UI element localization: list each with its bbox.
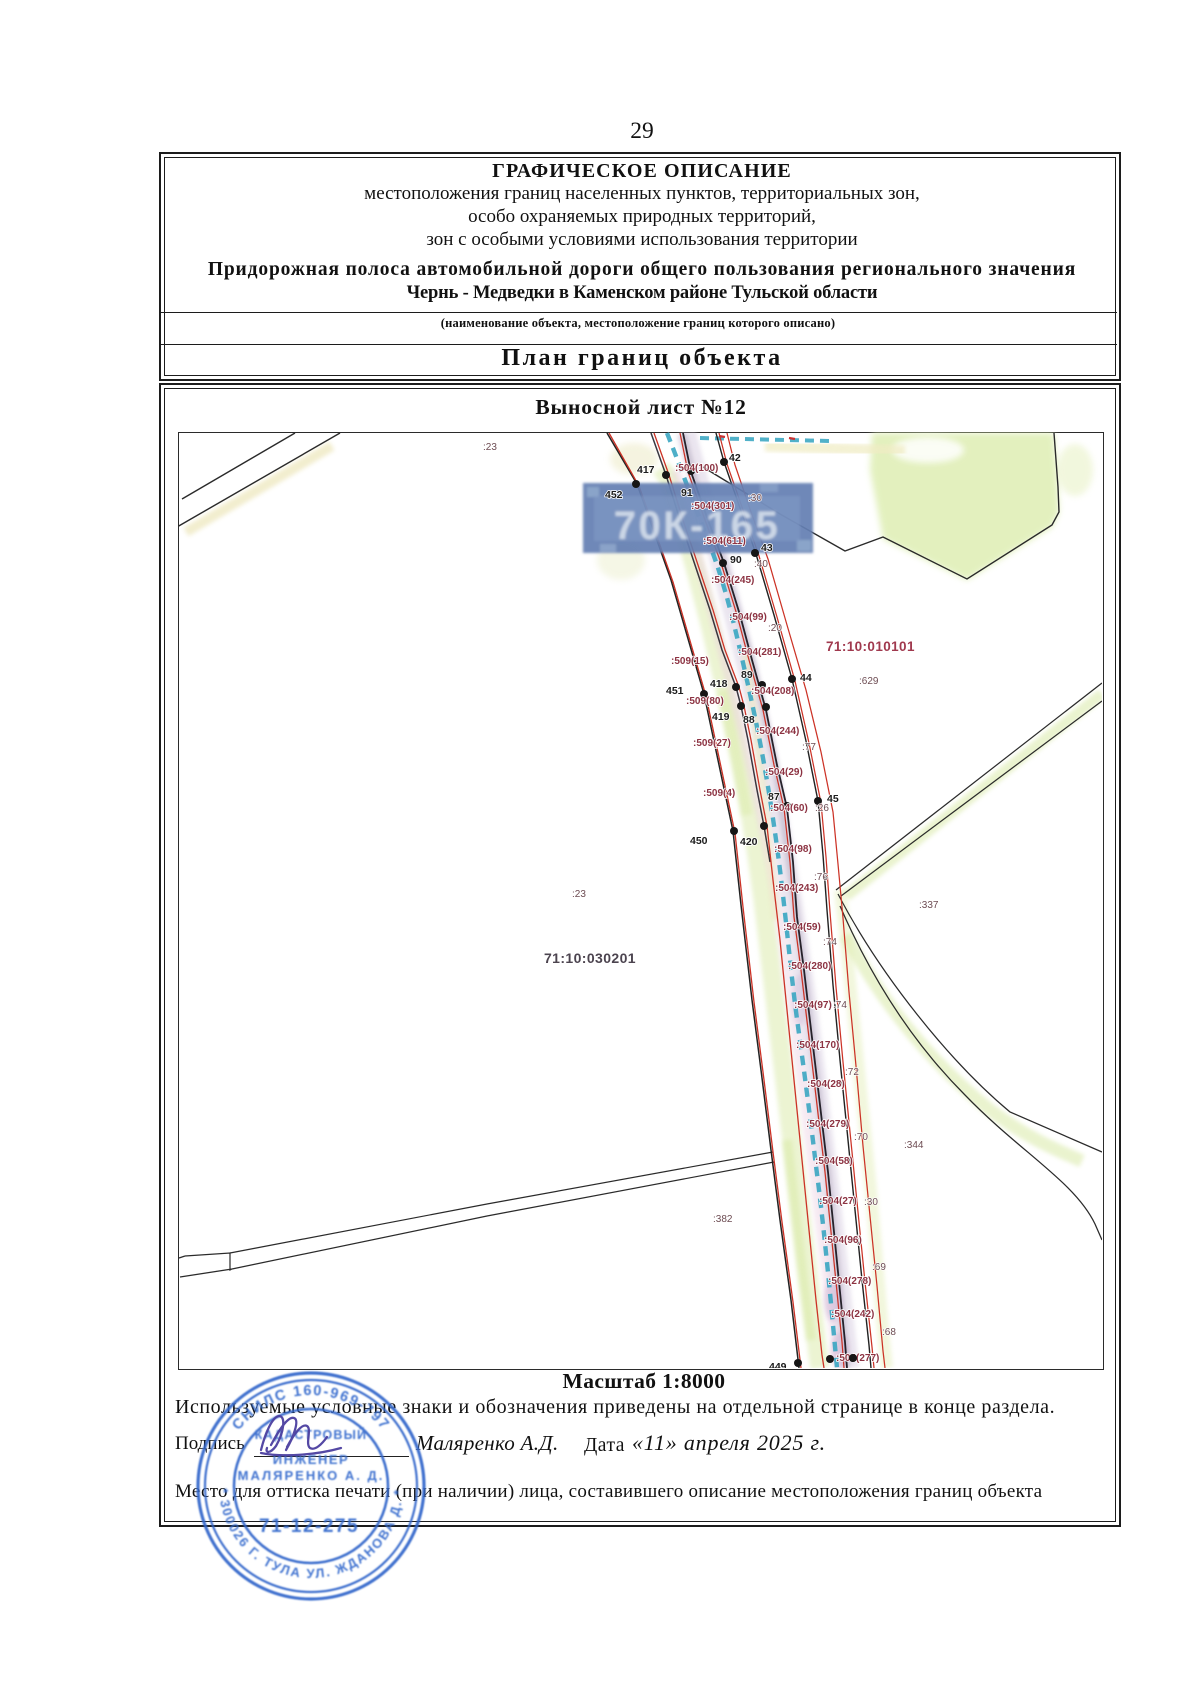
svg-text::504(243): :504(243)	[775, 883, 818, 894]
svg-text::76: :76	[814, 872, 828, 883]
svg-text:71-12-275: 71-12-275	[259, 1516, 359, 1537]
svg-text:449: 449	[769, 1361, 787, 1368]
svg-text:420: 420	[740, 836, 758, 848]
svg-text::504(100): :504(100)	[675, 463, 718, 474]
svg-text:42: 42	[729, 452, 741, 464]
svg-text::629: :629	[859, 676, 879, 687]
svg-text::69: :69	[872, 1262, 886, 1273]
svg-text::504(208): :504(208)	[751, 686, 794, 697]
svg-text:418: 418	[710, 678, 728, 690]
svg-text::40: :40	[754, 559, 768, 570]
svg-text::504(99): :504(99)	[729, 612, 767, 623]
svg-text::72: :72	[845, 1067, 859, 1078]
svg-text::504(611): :504(611)	[703, 536, 746, 547]
svg-text:87: 87	[768, 791, 780, 803]
svg-text::77: :77	[802, 742, 816, 753]
svg-text::382: :382	[713, 1214, 733, 1225]
svg-text::504(245): :504(245)	[711, 575, 754, 586]
svg-text::344: :344	[904, 1140, 924, 1151]
svg-text::70: :70	[854, 1132, 868, 1143]
svg-text::509(15): :509(15)	[671, 656, 709, 667]
svg-text::504(170): :504(170)	[796, 1040, 839, 1051]
svg-text:417: 417	[637, 464, 655, 476]
svg-text::504(242): :504(242)	[831, 1309, 874, 1320]
svg-text::504(58): :504(58)	[815, 1156, 853, 1167]
svg-text:71:10:010101: 71:10:010101	[826, 639, 915, 654]
svg-text:МАЛЯРЕНКО А. Д.: МАЛЯРЕНКО А. Д.	[238, 1468, 385, 1483]
svg-text::504(279): :504(279)	[806, 1119, 849, 1130]
svg-text:43: 43	[761, 542, 773, 554]
svg-text::23: :23	[483, 442, 497, 453]
svg-text::504(281): :504(281)	[738, 647, 781, 658]
svg-text::504(60): :504(60)	[770, 803, 808, 814]
svg-text:451: 451	[666, 685, 684, 697]
svg-text:419: 419	[712, 711, 730, 723]
svg-text::74: :74	[833, 1000, 847, 1011]
svg-text::68: :68	[882, 1327, 896, 1338]
svg-text::504(59): :504(59)	[783, 922, 821, 933]
svg-text::74: :74	[823, 937, 837, 948]
svg-text::504(27): :504(27)	[819, 1196, 857, 1207]
svg-text:88: 88	[743, 714, 755, 726]
svg-text:91: 91	[681, 487, 693, 499]
svg-text::504(29): :504(29)	[765, 767, 803, 778]
svg-text::504(28): :504(28)	[807, 1079, 845, 1090]
svg-text::509(27): :509(27)	[693, 738, 731, 749]
svg-text:44: 44	[800, 672, 812, 684]
svg-text:89: 89	[741, 669, 753, 681]
svg-text::20: :20	[768, 623, 782, 634]
svg-text::504(97): :504(97)	[794, 1000, 832, 1011]
svg-text::504(301): :504(301)	[691, 501, 734, 512]
svg-text::504(244): :504(244)	[756, 726, 799, 737]
svg-text::504(98): :504(98)	[774, 844, 812, 855]
svg-text::26: :26	[815, 803, 829, 814]
svg-text::509(80): :509(80)	[686, 696, 724, 707]
svg-text:71:10:030201: 71:10:030201	[544, 950, 636, 966]
svg-text::504(96): :504(96)	[824, 1235, 862, 1246]
svg-text:450: 450	[690, 835, 708, 847]
svg-text::23: :23	[572, 889, 586, 900]
svg-text::337: :337	[919, 900, 939, 911]
svg-text:452: 452	[605, 489, 623, 501]
svg-text:90: 90	[730, 554, 742, 566]
svg-text::504(277): :504(277)	[836, 1353, 879, 1364]
svg-text:КАДАСТРОВЫЙ: КАДАСТРОВЫЙ	[255, 1427, 367, 1442]
svg-text::504(280): :504(280)	[788, 961, 831, 972]
svg-text::30: :30	[748, 493, 762, 504]
svg-text::504(278): :504(278)	[828, 1276, 871, 1287]
svg-text::509(4): :509(4)	[703, 788, 735, 799]
svg-text::30: :30	[864, 1197, 878, 1208]
